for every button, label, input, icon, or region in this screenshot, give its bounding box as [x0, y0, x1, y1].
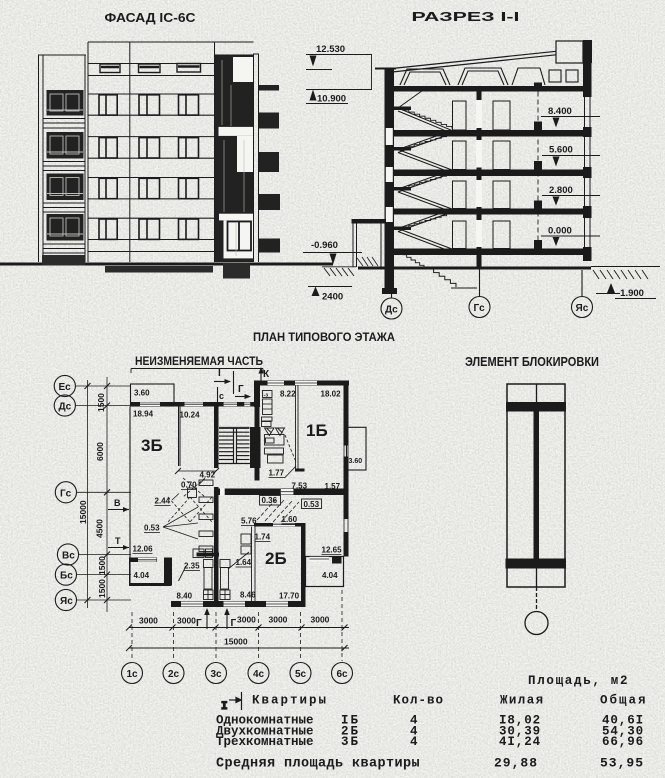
svg-text:53,95: 53,95	[600, 756, 644, 771]
svg-text:4: 4	[410, 735, 418, 749]
svg-text:-з: -з	[264, 393, 269, 399]
svg-text:6с: 6с	[337, 669, 349, 680]
svg-text:17.70: 17.70	[279, 592, 300, 601]
svg-text:В: В	[114, 498, 121, 508]
svg-text:3000: 3000	[139, 616, 158, 626]
svg-text:12.65: 12.65	[322, 546, 343, 555]
svg-text:4.92: 4.92	[200, 471, 216, 480]
svg-text:1.74: 1.74	[255, 533, 271, 542]
svg-text:Площадь, м2: Площадь, м2	[528, 674, 629, 688]
svg-text:К: К	[263, 369, 270, 380]
svg-text:15000: 15000	[224, 637, 248, 647]
svg-text:Г: Г	[231, 618, 237, 629]
svg-text:ПЛАН ТИПОВОГО ЭТАЖА: ПЛАН ТИПОВОГО ЭТАЖА	[253, 330, 395, 344]
svg-text:Т: Т	[115, 536, 121, 546]
svg-text:-1.900: -1.900	[617, 288, 644, 299]
svg-text:I: I	[218, 368, 221, 379]
svg-text:6000: 6000	[95, 442, 105, 461]
svg-text:1.57: 1.57	[325, 482, 341, 491]
svg-text:Трехкомнатные: Трехкомнатные	[216, 735, 314, 749]
svg-text:Гс: Гс	[60, 488, 72, 499]
svg-text:2.35: 2.35	[184, 562, 200, 571]
svg-text:Бс: Бс	[60, 571, 73, 582]
svg-text:10.900: 10.900	[317, 94, 346, 105]
svg-text:5с: 5с	[295, 669, 307, 680]
svg-text:8.46: 8.46	[240, 591, 256, 600]
svg-text:1500: 1500	[97, 579, 107, 598]
svg-text:2с: 2с	[168, 669, 180, 680]
svg-text:Дс: Дс	[385, 305, 398, 316]
svg-text:5.600: 5.600	[549, 145, 573, 156]
svg-text:Яс: Яс	[60, 596, 73, 607]
svg-text:12.530: 12.530	[316, 44, 345, 55]
svg-text:Жилая: Жилая	[500, 694, 545, 708]
svg-text:Г: Г	[196, 618, 202, 629]
svg-text:8.22: 8.22	[280, 390, 296, 399]
svg-text:Дс: Дс	[59, 402, 72, 413]
svg-text:18.94: 18.94	[133, 410, 154, 419]
svg-text:7.53: 7.53	[292, 482, 308, 491]
svg-text:1.77: 1.77	[269, 469, 285, 478]
svg-text:3000: 3000	[269, 615, 288, 625]
svg-text:3Б: 3Б	[341, 735, 360, 749]
svg-text:4с: 4с	[253, 669, 265, 680]
svg-text:3.60: 3.60	[134, 389, 150, 398]
svg-text:2.800: 2.800	[549, 185, 573, 196]
svg-text:2.44: 2.44	[155, 497, 171, 506]
svg-text:4500: 4500	[95, 519, 105, 538]
svg-text:Ес: Ес	[59, 382, 72, 393]
svg-text:Вс: Вс	[62, 551, 75, 562]
svg-text:3с: 3с	[211, 669, 223, 680]
svg-text:2400: 2400	[322, 292, 343, 303]
svg-text:РАЗРЕЗ I-I: РАЗРЕЗ I-I	[412, 9, 520, 24]
svg-text:0.000: 0.000	[548, 226, 572, 237]
svg-text:10.24: 10.24	[180, 411, 201, 420]
svg-text:1500: 1500	[96, 393, 106, 412]
svg-text:Средняя площадь квартиры: Средняя площадь квартиры	[216, 757, 420, 772]
svg-text:18.02: 18.02	[321, 390, 342, 399]
svg-text:ФАСАД IC-6C: ФАСАД IC-6C	[105, 10, 197, 25]
svg-text:Г: Г	[238, 384, 244, 395]
svg-text:0.70: 0.70	[181, 481, 197, 490]
svg-text:3.60: 3.60	[349, 458, 363, 465]
svg-text:Общая: Общая	[600, 693, 648, 708]
svg-text:5.76: 5.76	[241, 517, 257, 526]
svg-text:2Б: 2Б	[265, 549, 287, 568]
svg-text:12.06: 12.06	[133, 545, 154, 554]
svg-text:ЭЛЕМЕНТ БЛОКИРОВКИ: ЭЛЕМЕНТ БЛОКИРОВКИ	[465, 355, 599, 369]
svg-text:8.400: 8.400	[548, 106, 572, 117]
svg-text:29,88: 29,88	[494, 756, 538, 771]
svg-text:3000: 3000	[311, 615, 330, 625]
svg-text:1.64: 1.64	[236, 558, 252, 567]
svg-text:1с: 1с	[127, 669, 139, 680]
svg-text:НЕИЗМЕНЯЕМАЯ ЧАСТЬ: НЕИЗМЕНЯЕМАЯ ЧАСТЬ	[135, 356, 263, 368]
svg-text:Яс: Яс	[576, 303, 589, 314]
svg-text:4.04: 4.04	[134, 571, 150, 580]
svg-text:I: I	[221, 701, 228, 713]
svg-text:Квартиры: Квартиры	[252, 694, 328, 708]
svg-text:3000: 3000	[177, 616, 196, 626]
svg-text:1.60: 1.60	[282, 515, 298, 524]
svg-text:с: с	[219, 391, 224, 401]
svg-text:4I,24: 4I,24	[499, 735, 541, 749]
svg-text:4.04: 4.04	[322, 571, 338, 580]
svg-text:3000: 3000	[237, 615, 256, 625]
svg-text:8.40: 8.40	[177, 592, 193, 601]
svg-text:-0.960: -0.960	[311, 240, 338, 251]
svg-text:3Б: 3Б	[141, 436, 163, 455]
svg-text:0.36: 0.36	[262, 496, 278, 505]
svg-text:15000: 15000	[78, 500, 88, 524]
svg-text:1Б: 1Б	[306, 421, 328, 440]
svg-text:0.53: 0.53	[144, 524, 160, 533]
svg-text:Гс: Гс	[474, 303, 486, 314]
svg-text:Кол-во: Кол-во	[393, 694, 444, 708]
svg-text:0.53: 0.53	[304, 500, 320, 509]
svg-text:66,96: 66,96	[602, 735, 644, 749]
svg-text:1500: 1500	[97, 556, 107, 575]
